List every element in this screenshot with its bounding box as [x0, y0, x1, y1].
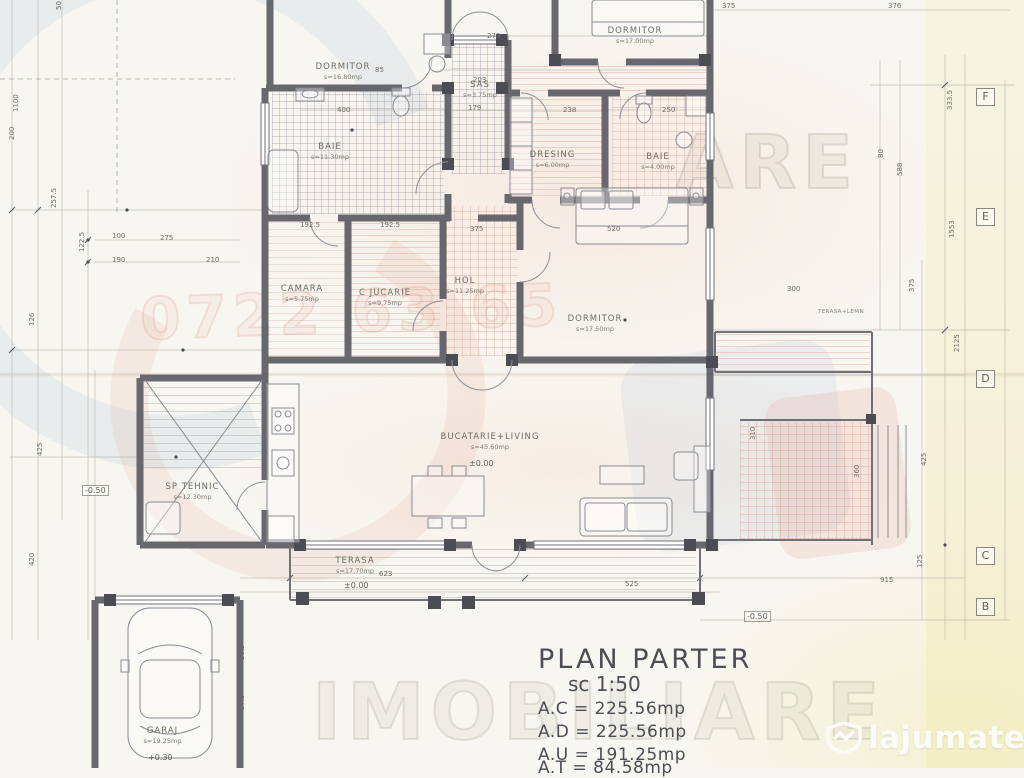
room-name: DORMITOR — [570, 26, 700, 36]
plan-title: PLAN PARTER — [538, 644, 752, 675]
room-label: GARAJs=19.25mp — [110, 726, 215, 745]
dimension-label: 425 — [920, 453, 928, 466]
room-area: s=17.50mp — [540, 325, 650, 333]
dimension-label: 250 — [662, 106, 675, 114]
dimension-label: 375 — [470, 225, 483, 233]
dormitor-left-furniture — [424, 34, 450, 72]
dimension-label: 122.5 — [78, 232, 86, 252]
dimension-label: 588 — [896, 163, 904, 176]
level-marker: +0.30 — [148, 753, 173, 762]
room-area: s=17.00mp — [570, 37, 700, 45]
columns — [104, 34, 876, 609]
dimension-label: 2125 — [953, 334, 961, 352]
dimension-label: 85 — [375, 66, 384, 74]
dimension-label: 210 — [206, 256, 219, 264]
level-marker: -0.50 — [744, 611, 771, 622]
room-area: s=3.75mp — [430, 91, 530, 99]
room-area: s=11.30mp — [270, 153, 390, 161]
room-label: DORMITORs=17.00mp — [570, 26, 700, 45]
dimension-label: 80 — [877, 149, 885, 158]
dimension-label: 1553 — [948, 220, 956, 238]
room-name: DRESING — [505, 150, 600, 160]
dimension-label: 190 — [112, 256, 125, 264]
sp-tehnic-equipment — [145, 380, 262, 542]
room-label: SP TEHNICs=12.30mp — [130, 482, 255, 501]
floor-plan-page: { "title_block": { "title": "PLAN PARTER… — [0, 0, 1024, 768]
dimension-label: 58.5 — [238, 644, 246, 660]
dimension-label: 203 — [473, 76, 486, 84]
dimension-label: 179 — [468, 104, 481, 112]
room-name: BUCATARIE+LIVING — [400, 432, 580, 442]
dimension-label: 310 — [749, 427, 757, 440]
grid-letter-b: B — [976, 598, 995, 616]
dimension-label: 1100 — [12, 94, 20, 112]
dining-table — [412, 466, 484, 528]
annotation-label: TERASA+LEMN — [818, 309, 864, 315]
plan-scale: sc 1:50 — [568, 672, 752, 696]
room-label: BUCATARIE+LIVINGs=45.60mp — [400, 432, 580, 451]
room-area: s=9.75mp — [330, 299, 440, 307]
room-name: DORMITOR — [268, 62, 418, 72]
dashed-guide-lines — [0, 0, 235, 215]
dimension-label: 126 — [28, 313, 36, 326]
plan-drawing — [0, 0, 1024, 768]
room-area: s=45.60mp — [400, 443, 580, 451]
dimension-label: 333.5 — [946, 90, 954, 110]
room-name: HOL — [420, 276, 510, 286]
area-line-partial: A.T = 84.58mp — [538, 758, 673, 778]
room-label: HOLs=11.25mp — [420, 276, 510, 295]
room-label: DORMITORs=16.80mp — [268, 62, 418, 81]
room-label: DORMITORs=17.50mp — [540, 314, 650, 333]
room-label: BAIEs=4.00mp — [612, 152, 704, 171]
level-marker: ±0.00 — [344, 581, 369, 590]
dimension-label: 192.5 — [300, 221, 320, 229]
grid-letter-e: E — [976, 208, 995, 226]
dimension-label: 300 — [787, 285, 800, 293]
room-area: s=6.00mp — [505, 161, 600, 169]
sofa — [580, 446, 710, 536]
room-name: BAIE — [612, 152, 704, 162]
dimension-label: 425 — [36, 443, 44, 456]
dimension-label: 360 — [853, 465, 861, 478]
dimension-label: 525 — [625, 580, 638, 588]
room-name: SP TEHNIC — [130, 482, 255, 492]
dimension-label: 279 — [487, 32, 500, 40]
grid-letter-d: D — [976, 370, 995, 388]
level-marker: -0.50 — [82, 485, 109, 496]
dimension-label: 375 — [908, 279, 916, 292]
dimension-label: 257.5 — [50, 188, 58, 208]
room-area: s=4.00mp — [612, 163, 704, 171]
room-area: s=12.30mp — [130, 493, 255, 501]
dimension-label: 100 — [112, 232, 125, 240]
room-label: DRESINGs=6.00mp — [505, 150, 600, 169]
room-area: s=19.25mp — [110, 737, 215, 745]
room-name: TERASA — [300, 556, 410, 566]
dimension-label: 420 — [28, 553, 36, 566]
dimension-label: 376 — [888, 2, 901, 10]
dimension-label: 375 — [722, 2, 735, 10]
dimension-label: 400 — [337, 106, 350, 114]
area-line-ad: A.D = 225.56mp — [538, 722, 752, 742]
exterior-steps — [878, 425, 906, 538]
dimension-label: 238 — [563, 106, 576, 114]
dimension-label: 125 — [916, 555, 924, 568]
baie-right-fixtures — [636, 96, 706, 148]
dimension-label: 275 — [160, 234, 173, 242]
room-label: TERASAs=17.70mp — [300, 556, 410, 575]
grid-letter-c: C — [976, 547, 995, 565]
dimension-label: 200 — [8, 127, 16, 140]
room-name: BAIE — [270, 142, 390, 152]
dimension-label: 192.5 — [380, 221, 400, 229]
dresing-wardrobe — [510, 98, 532, 194]
dimension-label: 915 — [880, 576, 893, 584]
room-area: s=11.25mp — [420, 287, 510, 295]
room-area: s=16.80mp — [268, 73, 418, 81]
room-name: GARAJ — [110, 726, 215, 736]
grid-letter-f: F — [976, 88, 995, 106]
kitchen-counter — [267, 384, 299, 542]
room-label: BAIEs=11.30mp — [270, 142, 390, 161]
dimension-label: 97.5 — [238, 694, 246, 710]
bed-main — [561, 188, 703, 244]
title-block: PLAN PARTER sc 1:50 A.C = 225.56mp A.D =… — [538, 644, 752, 765]
level-marker: ±0.00 — [469, 459, 494, 468]
room-name: DORMITOR — [540, 314, 650, 324]
area-line-ac: A.C = 225.56mp — [538, 699, 752, 719]
dimension-label: 623 — [379, 570, 392, 578]
dimension-label: 520 — [607, 225, 620, 233]
room-area: s=17.70mp — [300, 567, 410, 575]
dimension-label: 50 — [55, 1, 63, 10]
